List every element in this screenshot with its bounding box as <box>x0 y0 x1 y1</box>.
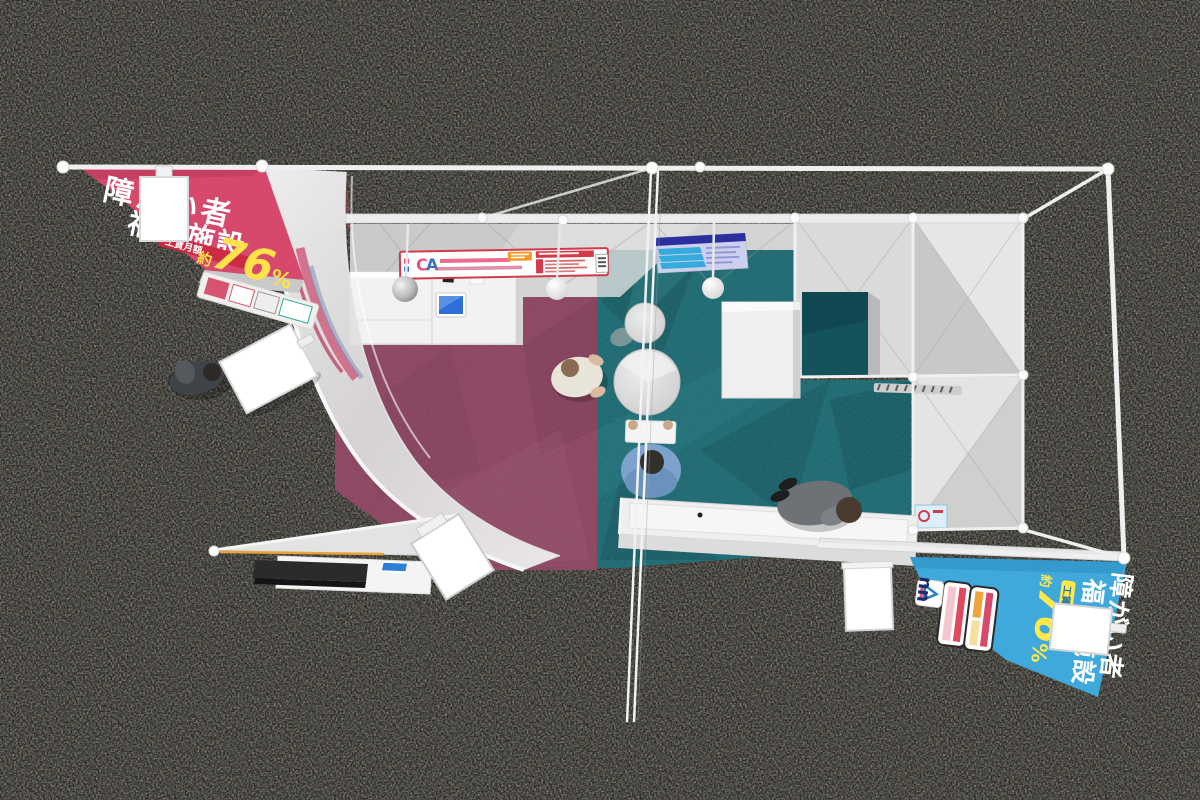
blank-sign-hanging-top <box>140 166 188 241</box>
wall-graphic-small <box>915 505 947 528</box>
side-desk <box>722 302 800 398</box>
pendant-lamp <box>546 278 568 300</box>
pendant-lamp <box>702 277 724 299</box>
wall-poster <box>655 233 748 273</box>
chrome-pendant-lamp <box>392 276 418 302</box>
fascia-logo-a: A <box>426 255 439 274</box>
fascia-sign: C A <box>400 248 608 279</box>
banner-blue-logo-text: nn <box>912 575 936 603</box>
booth-render: 障がい者 福祉施設 工賃月額 約76% C A <box>0 0 1200 800</box>
blank-sign-south <box>842 561 895 631</box>
back-wall <box>346 214 1023 223</box>
counter-tablet-2 <box>381 562 408 572</box>
reception-counter <box>350 272 516 344</box>
